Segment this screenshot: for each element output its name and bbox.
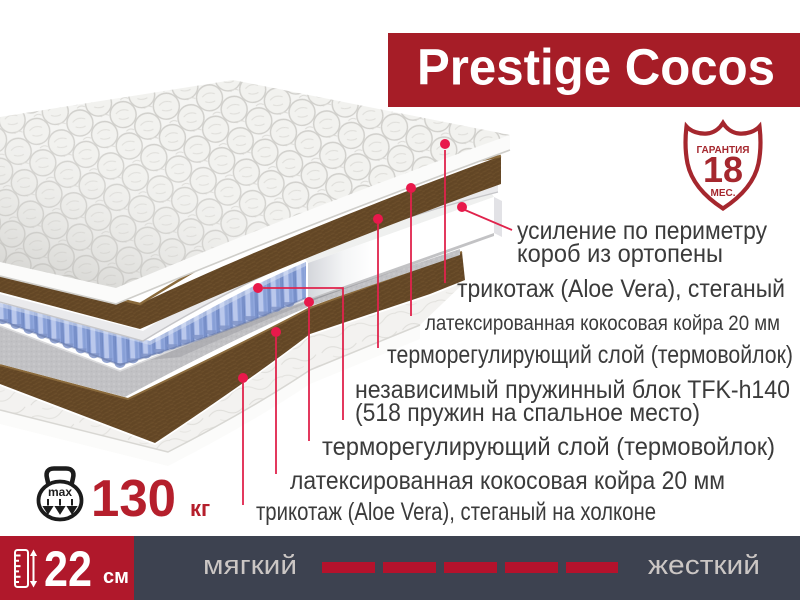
- svg-text:130: 130: [91, 470, 176, 528]
- svg-text:терморегулирующий слой (термов: терморегулирующий слой (термовойлок): [387, 341, 793, 369]
- svg-text:мягкий: мягкий: [203, 550, 297, 580]
- svg-text:Prestige Cocos: Prestige Cocos: [417, 39, 775, 96]
- svg-text:латексированная кокосовая койр: латексированная кокосовая койра 20 мм: [290, 467, 725, 495]
- svg-text:(518 пружин на спальное место): (518 пружин на спальное место): [355, 399, 700, 427]
- svg-text:трикотаж (Aloe Vera), стеганый: трикотаж (Aloe Vera), стеганый на холкон…: [256, 498, 656, 526]
- svg-text:трикотаж (Aloe Vera), стеганый: трикотаж (Aloe Vera), стеганый: [457, 275, 785, 303]
- svg-text:22: 22: [44, 541, 92, 597]
- svg-text:жесткий: жесткий: [648, 550, 760, 580]
- svg-text:короб из ортопены: короб из ортопены: [517, 240, 723, 268]
- svg-text:латексированная кокосовая койр: латексированная кокосовая койра 20 мм: [425, 312, 780, 335]
- svg-text:18: 18: [703, 149, 743, 190]
- svg-text:терморегулирующий слой (термов: терморегулирующий слой (термовойлок): [322, 433, 775, 461]
- svg-text:см: см: [103, 566, 129, 588]
- svg-text:кг: кг: [190, 496, 210, 521]
- svg-text:max: max: [48, 485, 72, 499]
- svg-text:МЕС.: МЕС.: [711, 188, 736, 199]
